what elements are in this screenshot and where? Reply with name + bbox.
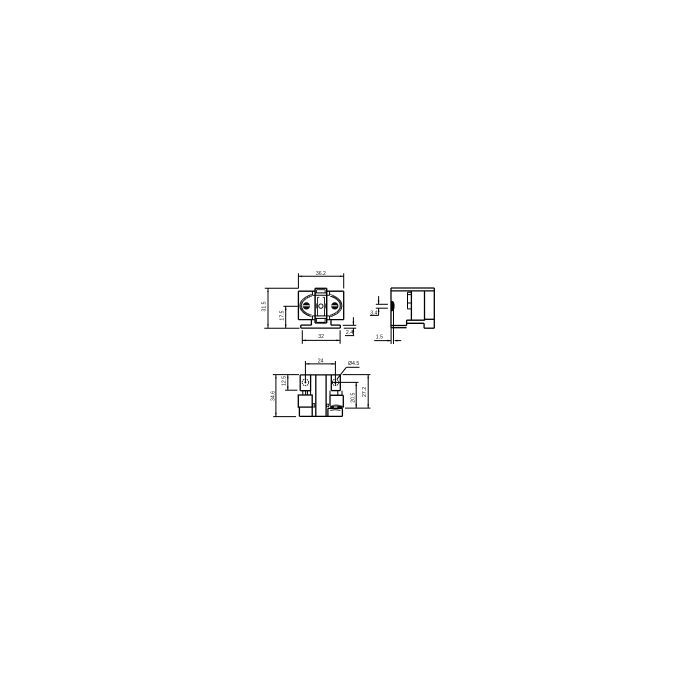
svg-text:1.5: 1.5 — [376, 334, 383, 340]
svg-text:36.2: 36.2 — [316, 271, 326, 277]
svg-text:27.2: 27.2 — [362, 387, 368, 397]
svg-text:12.5: 12.5 — [281, 376, 287, 386]
svg-text:32: 32 — [318, 334, 324, 340]
svg-text:2.4: 2.4 — [346, 330, 353, 336]
svg-text:31.5: 31.5 — [262, 301, 268, 311]
svg-text:34.6: 34.6 — [270, 391, 276, 401]
svg-text:Ø4.5: Ø4.5 — [348, 361, 359, 367]
svg-text:20.5: 20.5 — [351, 393, 357, 403]
svg-text:17.5: 17.5 — [279, 310, 285, 320]
svg-text:24: 24 — [318, 359, 324, 365]
